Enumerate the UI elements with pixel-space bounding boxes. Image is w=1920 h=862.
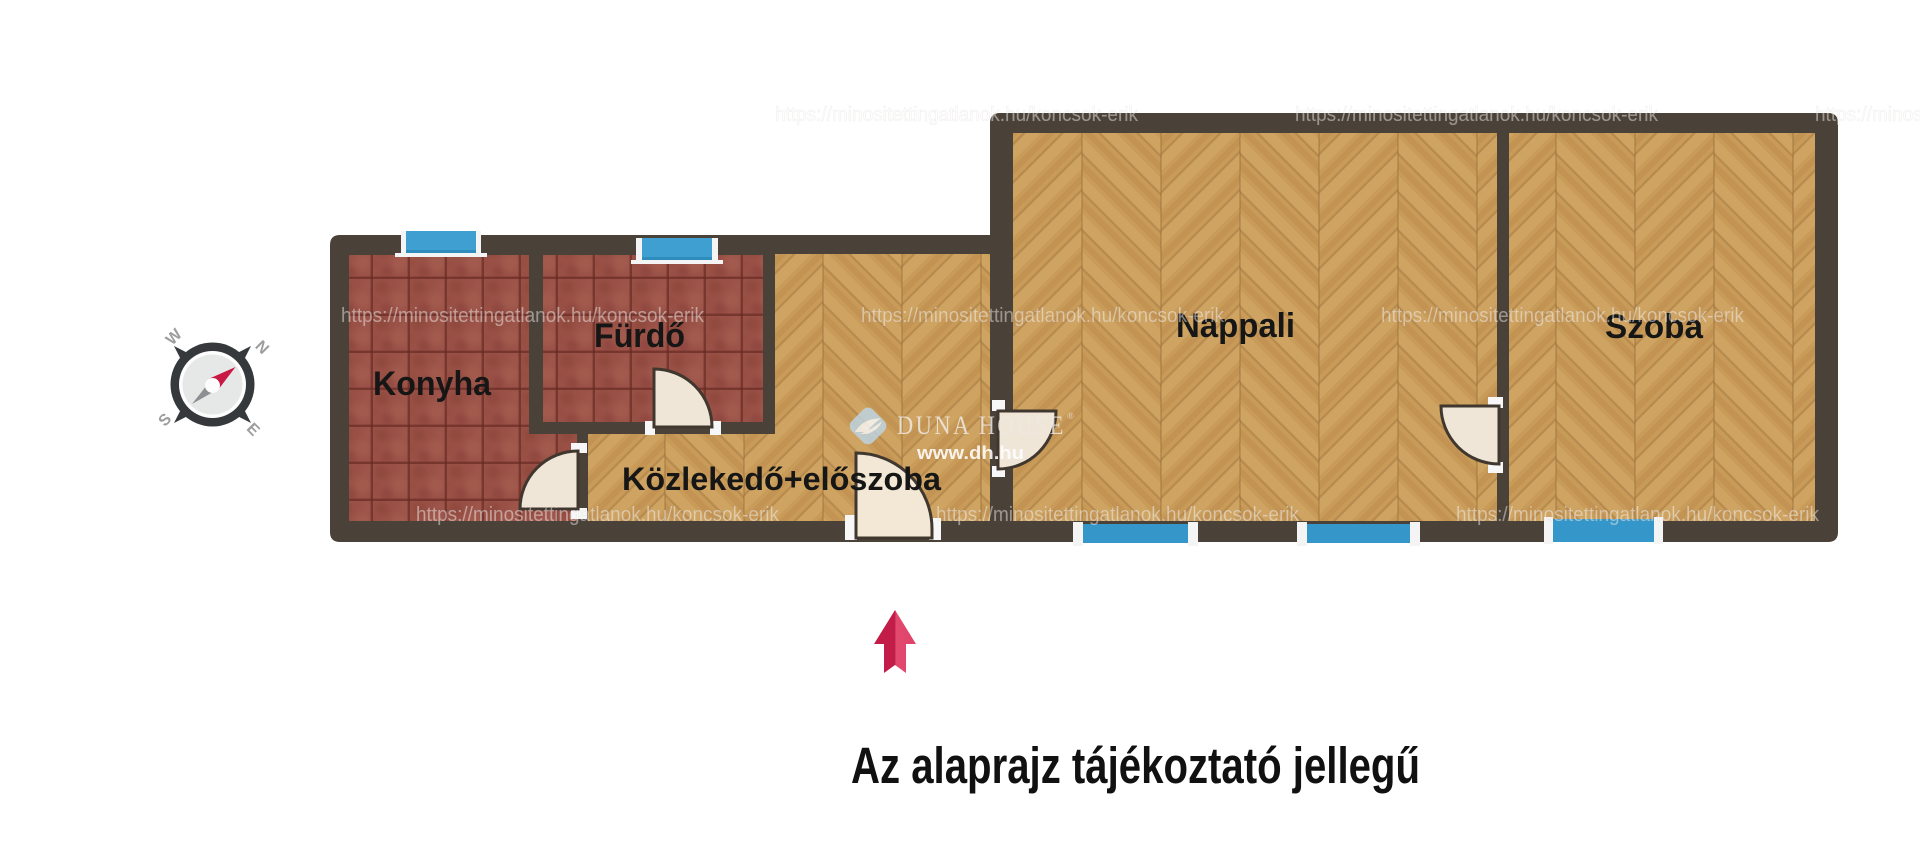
- svg-text:Konyha: Konyha: [373, 365, 492, 403]
- svg-text:Közlekedő+előszoba: Közlekedő+előszoba: [622, 461, 941, 497]
- svg-text:https://minositettingatlanok.h: https://minositettingatlanok.hu/koncsok-…: [861, 305, 1225, 327]
- svg-text:®: ®: [1067, 411, 1074, 421]
- svg-text:https://minositettingatlanok.h: https://minositettingatlanok.hu/koncsok-…: [1456, 504, 1820, 526]
- svg-text:https://minositettingatlanok.h: https://minositettingatlanok.hu/koncsok-…: [341, 305, 705, 327]
- svg-text:www.dh.hu: www.dh.hu: [916, 443, 1024, 463]
- svg-text:https://minositettingatlanok.h: https://minositettingatlanok.hu/koncsok-…: [1381, 305, 1745, 327]
- svg-text:https://minositettingatlanok.h: https://minositettingatlanok.hu/koncsok-…: [1295, 104, 1659, 126]
- svg-text:https://minositettingatlanok.h: https://minositettingatlanok.hu/koncsok-…: [936, 504, 1300, 526]
- svg-text:https://minositettingatlanok.h: https://minositettingatlanok.hu/koncsok-…: [775, 104, 1139, 126]
- svg-text:DUNA HOUSE: DUNA HOUSE: [897, 411, 1066, 440]
- svg-text:https://minositettingatlanok.h: https://minositettingatlanok.hu/koncsok-…: [1815, 104, 1920, 126]
- svg-text:https://minositettingatlanok.h: https://minositettingatlanok.hu/koncsok-…: [416, 504, 780, 526]
- svg-text:Az alaprajz tájékoztató jelleg: Az alaprajz tájékoztató jellegű: [851, 737, 1420, 794]
